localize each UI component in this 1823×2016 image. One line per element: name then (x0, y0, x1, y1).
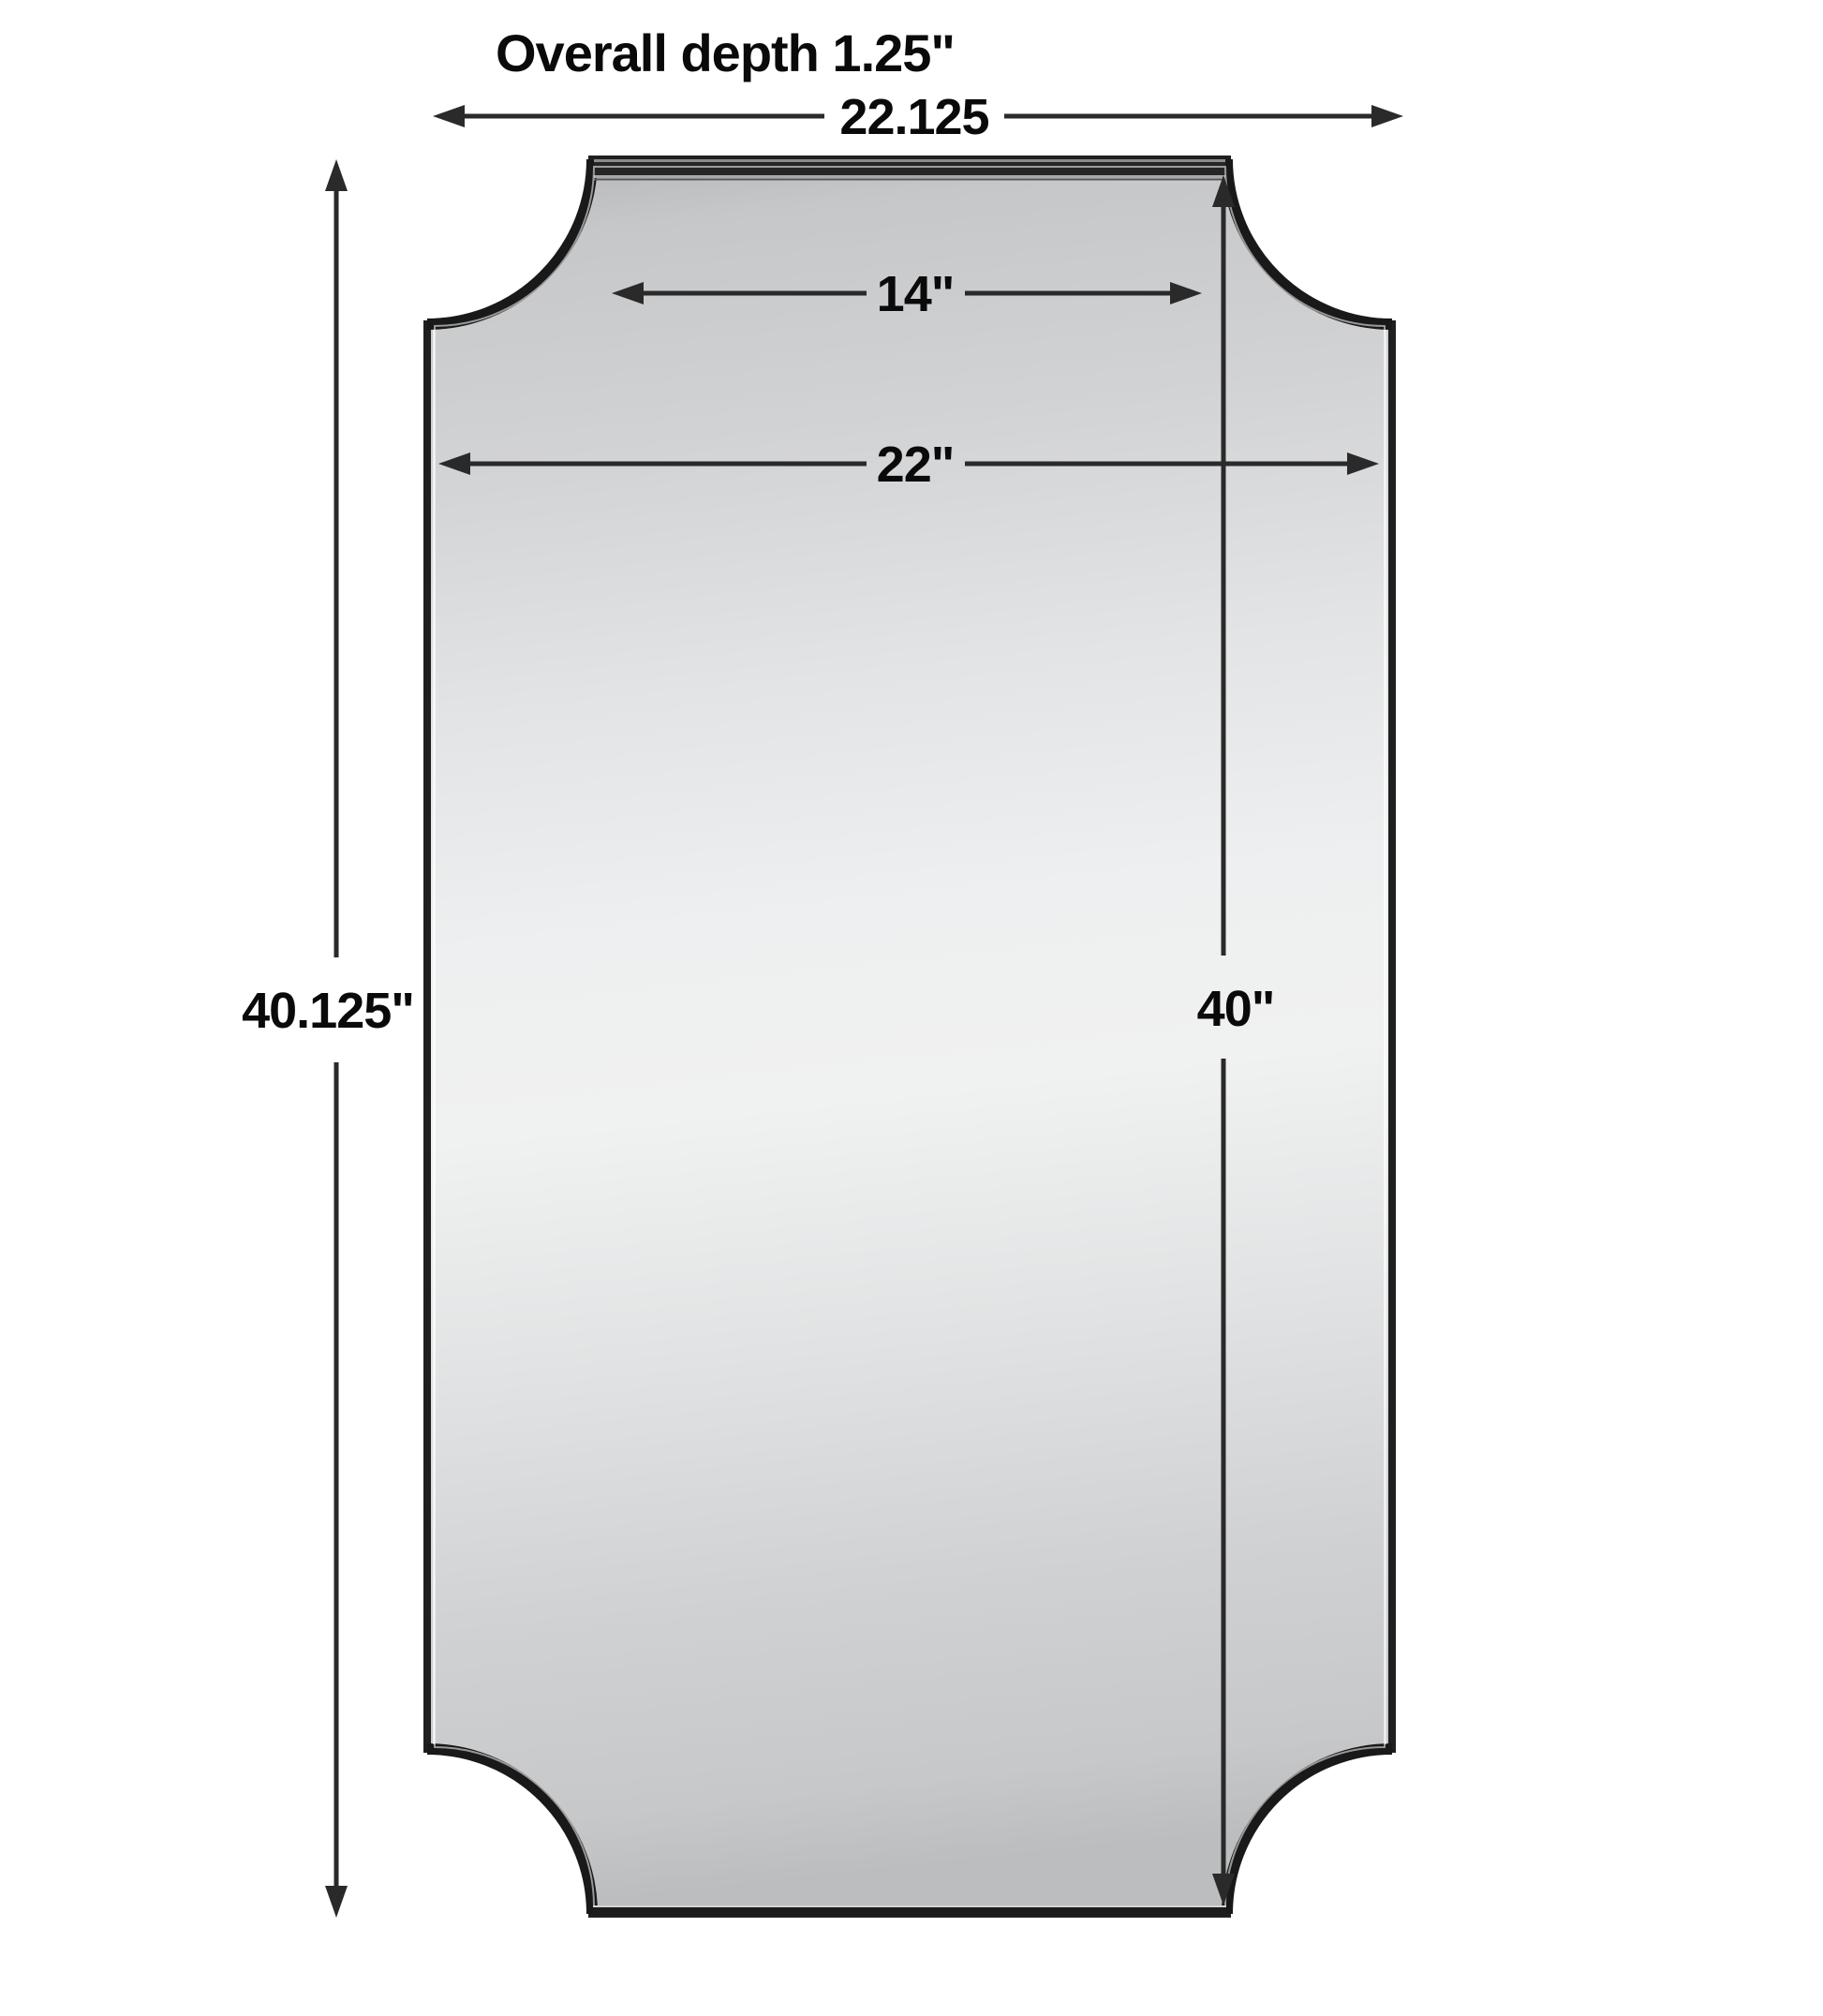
overall-height-dimension: 40.125" (242, 159, 414, 1918)
top-width-label: 14" (877, 266, 955, 322)
diagram-canvas: Overall depth 1.25" 22.125 14" 22" 40.12… (0, 0, 1823, 2016)
overall-height-arrow-top (325, 159, 348, 191)
overall-height-arrow-bottom (325, 1886, 348, 1918)
mirror-height-label: 40" (1197, 981, 1275, 1037)
mirror-dimension-diagram: Overall depth 1.25" 22.125 14" 22" 40.12… (0, 0, 1823, 2016)
overall-width-arrow-right (1371, 105, 1403, 127)
top-frame-band (594, 161, 1225, 180)
overall-width-arrow-left (433, 105, 465, 127)
overall-depth-label: Overall depth 1.25" (496, 23, 955, 82)
mirror-width-label: 22" (877, 437, 955, 493)
overall-width-dimension: 22.125 (433, 89, 1403, 145)
overall-height-label: 40.125" (242, 983, 414, 1039)
overall-width-label: 22.125 (839, 89, 988, 145)
